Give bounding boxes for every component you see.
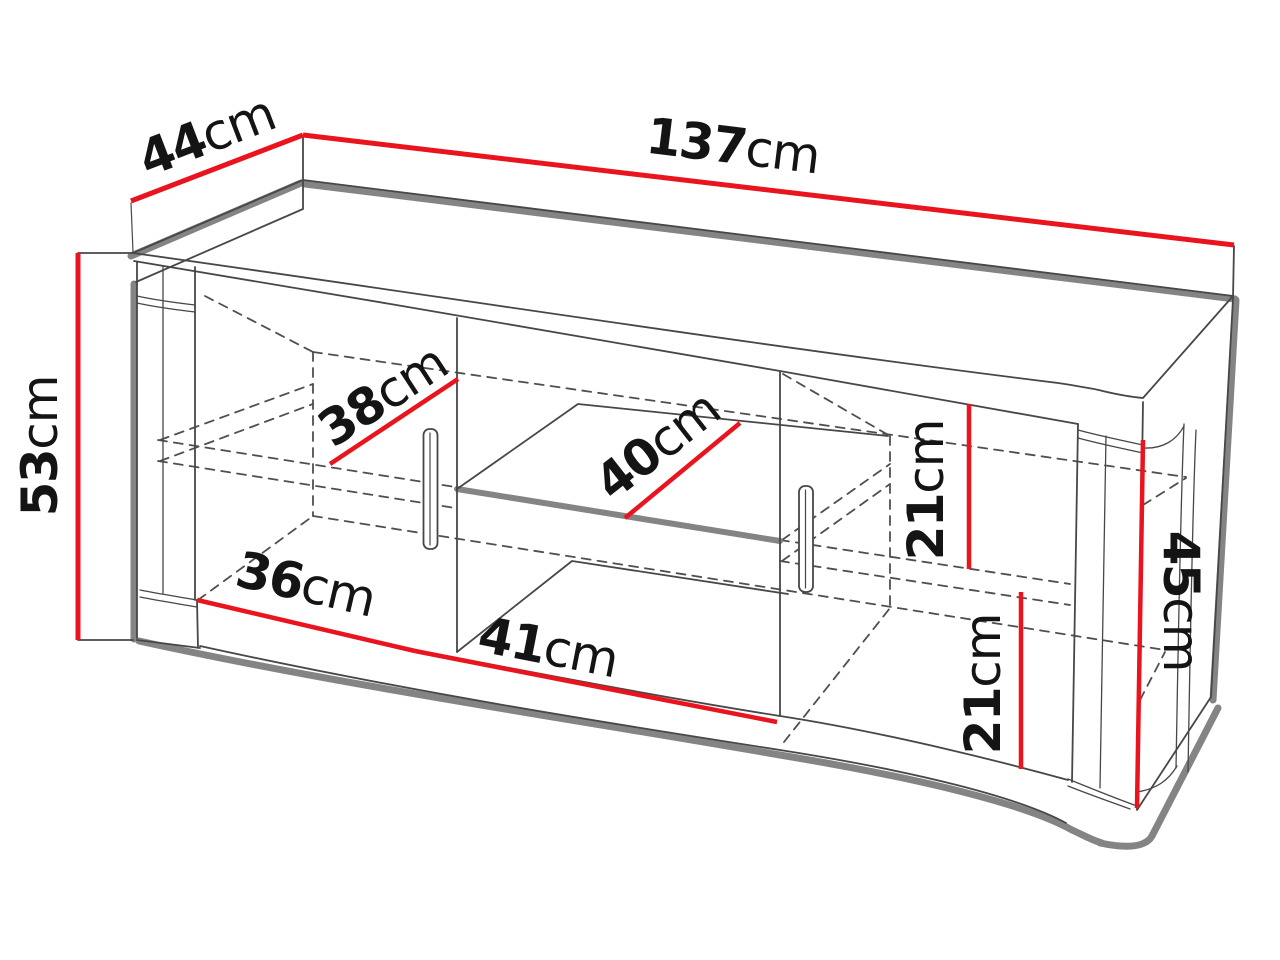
depth-connector-left — [131, 203, 133, 252]
left-pilaster-base-molding — [140, 590, 197, 607]
right-floor-depth-diagonal — [784, 608, 890, 742]
left-ceiling-depth-diagonal — [205, 296, 313, 352]
right-side-molding-top — [1143, 426, 1184, 448]
dim-label-right-upper-gap: 21cm — [897, 420, 955, 561]
right-pilaster-cap-molding — [1078, 430, 1143, 453]
left-pilaster-base-edge — [197, 600, 198, 648]
left-pilaster-cap-molding — [137, 296, 195, 312]
carcass-bottom-front-edge — [198, 601, 1068, 780]
top-back-edge-shadow — [305, 184, 1235, 299]
top-slab-left-face — [136, 182, 303, 282]
left-shelf-front-top — [158, 440, 455, 487]
dim-label-right-inner-height: 45cm — [1152, 531, 1210, 672]
width-connector-right — [1233, 246, 1234, 298]
right-pilaster-mid-line — [1100, 436, 1106, 788]
right-pilaster-left-edge — [1072, 424, 1078, 782]
side-panel-hidden-diagonal-top — [1143, 478, 1186, 505]
dim-line-right-inner-height-45 — [1137, 440, 1143, 808]
plinth-bottom-edge — [200, 646, 1066, 823]
right-shelf-front-bottom — [780, 561, 1070, 605]
carcass-top-front-edge — [134, 261, 1078, 424]
right-pilaster-base-molding — [1068, 779, 1137, 809]
dimension-drawing-canvas: 44cm 137cm 53cm 38cm 40cm 21cm 45cm 21cm… — [0, 0, 1280, 960]
dim-label-left-height: 53cm — [11, 376, 69, 517]
dim-label-niche-width: 41cm — [474, 605, 623, 689]
right-door-handle — [799, 486, 813, 592]
dim-label-right-lower-gap: 21cm — [954, 614, 1012, 755]
left-shelf-front-bottom — [158, 461, 455, 508]
left-door-handle — [424, 429, 438, 549]
right-back-edge-shadow — [1213, 300, 1236, 700]
furniture-dimension-diagram: 44cm 137cm 53cm 38cm 40cm 21cm 45cm 21cm… — [0, 0, 1280, 960]
shadow-edges-group — [131, 183, 1236, 846]
top-left-edge-shadow — [131, 183, 301, 256]
dim-label-top-width: 137cm — [643, 107, 823, 186]
